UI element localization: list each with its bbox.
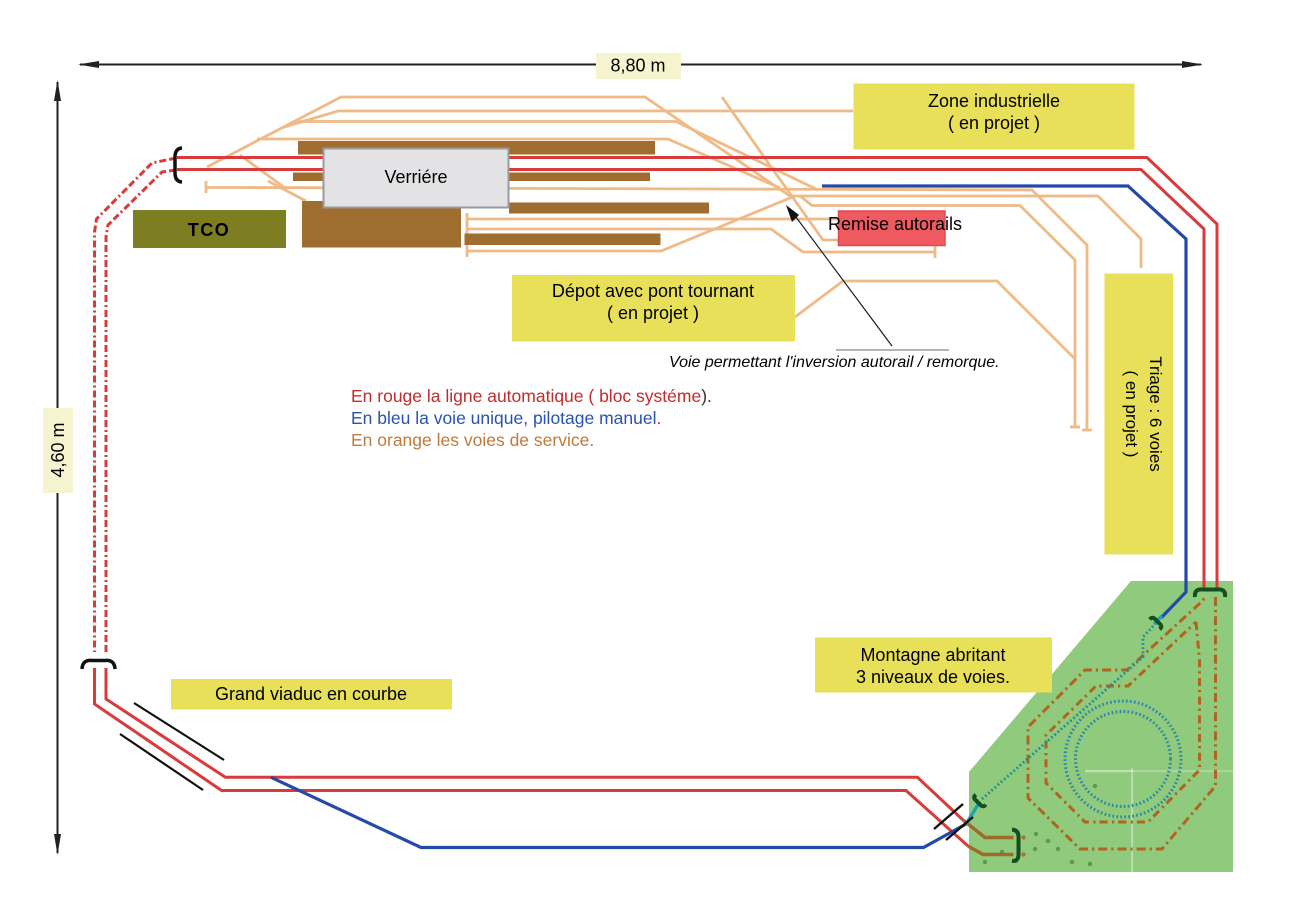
svg-text:En orange les voies de service: En orange les voies de service. bbox=[351, 430, 594, 450]
svg-text:( en projet ): ( en projet ) bbox=[948, 113, 1040, 133]
svg-text:Triage : 6 voies: Triage : 6 voies bbox=[1146, 356, 1165, 472]
svg-text:Grand viaduc en courbe: Grand viaduc en courbe bbox=[215, 684, 407, 704]
svg-text:Verriére: Verriére bbox=[384, 167, 447, 187]
svg-text:Voie permettant l'inversion au: Voie permettant l'inversion autorail / r… bbox=[669, 354, 1000, 371]
svg-text:En rouge la ligne automatique: En rouge la ligne automatique ( bloc sys… bbox=[351, 386, 712, 406]
svg-text:( en projet ): ( en projet ) bbox=[1122, 371, 1141, 458]
svg-text:( en projet ): ( en projet ) bbox=[607, 303, 699, 323]
svg-text:Zone industrielle: Zone industrielle bbox=[928, 91, 1060, 111]
svg-text:Remise autorails: Remise autorails bbox=[828, 214, 962, 234]
svg-text:3 niveaux de voies.: 3 niveaux de voies. bbox=[856, 667, 1010, 687]
svg-text:TCO: TCO bbox=[188, 220, 231, 240]
svg-text:Montagne abritant: Montagne abritant bbox=[860, 645, 1005, 665]
svg-text:8,80 m: 8,80 m bbox=[610, 56, 665, 76]
svg-text:4,60 m: 4,60 m bbox=[48, 422, 68, 477]
svg-text:En bleu la voie unique, pilota: En bleu la voie unique, pilotage manuel. bbox=[351, 408, 661, 428]
svg-text:Dépot avec pont tournant: Dépot avec pont tournant bbox=[552, 281, 754, 301]
